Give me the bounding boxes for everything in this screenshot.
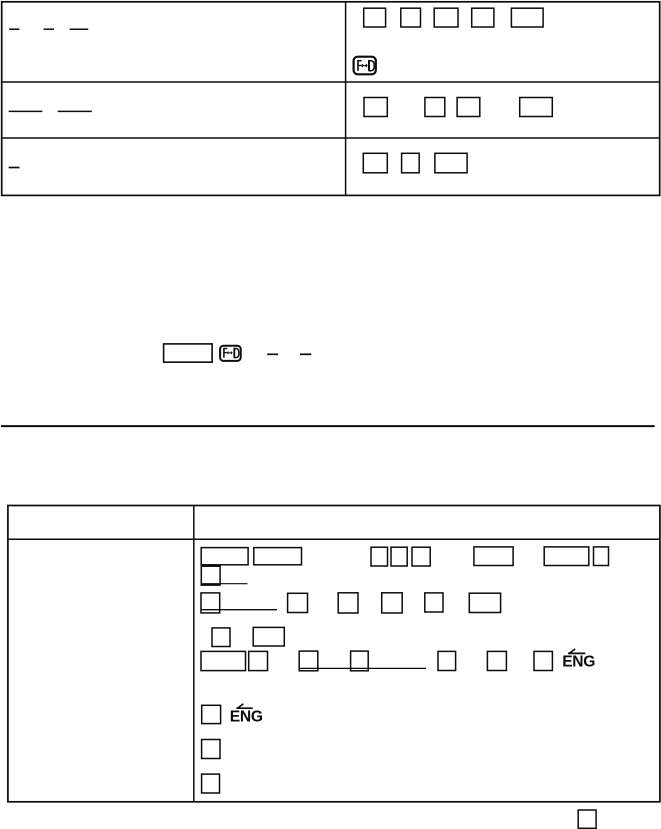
svg-text:ENG: ENG [230, 709, 263, 726]
svg-text:ENG: ENG [562, 654, 595, 671]
